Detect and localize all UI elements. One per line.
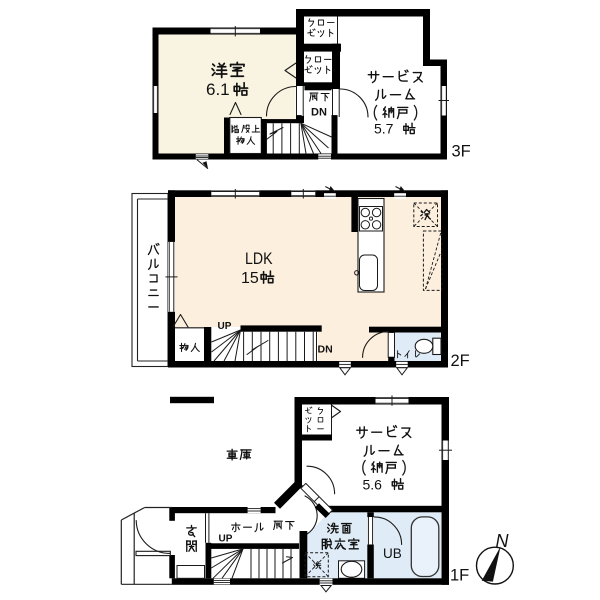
svg-text:3F: 3F — [452, 143, 471, 161]
svg-text:UP: UP — [219, 534, 233, 545]
svg-text:15: 15 — [241, 270, 259, 287]
svg-text:LDK: LDK — [245, 249, 273, 268]
svg-text:6.1: 6.1 — [206, 80, 230, 99]
svg-text:2F: 2F — [451, 352, 470, 370]
svg-text:5.7: 5.7 — [374, 121, 394, 137]
svg-text:DN: DN — [318, 344, 333, 356]
svg-text:1F: 1F — [450, 567, 469, 585]
svg-text:UB: UB — [383, 546, 402, 561]
svg-text:N: N — [496, 531, 510, 551]
svg-text:DN: DN — [311, 107, 327, 119]
svg-text:UP: UP — [218, 321, 232, 332]
svg-text:5.6: 5.6 — [363, 477, 383, 493]
